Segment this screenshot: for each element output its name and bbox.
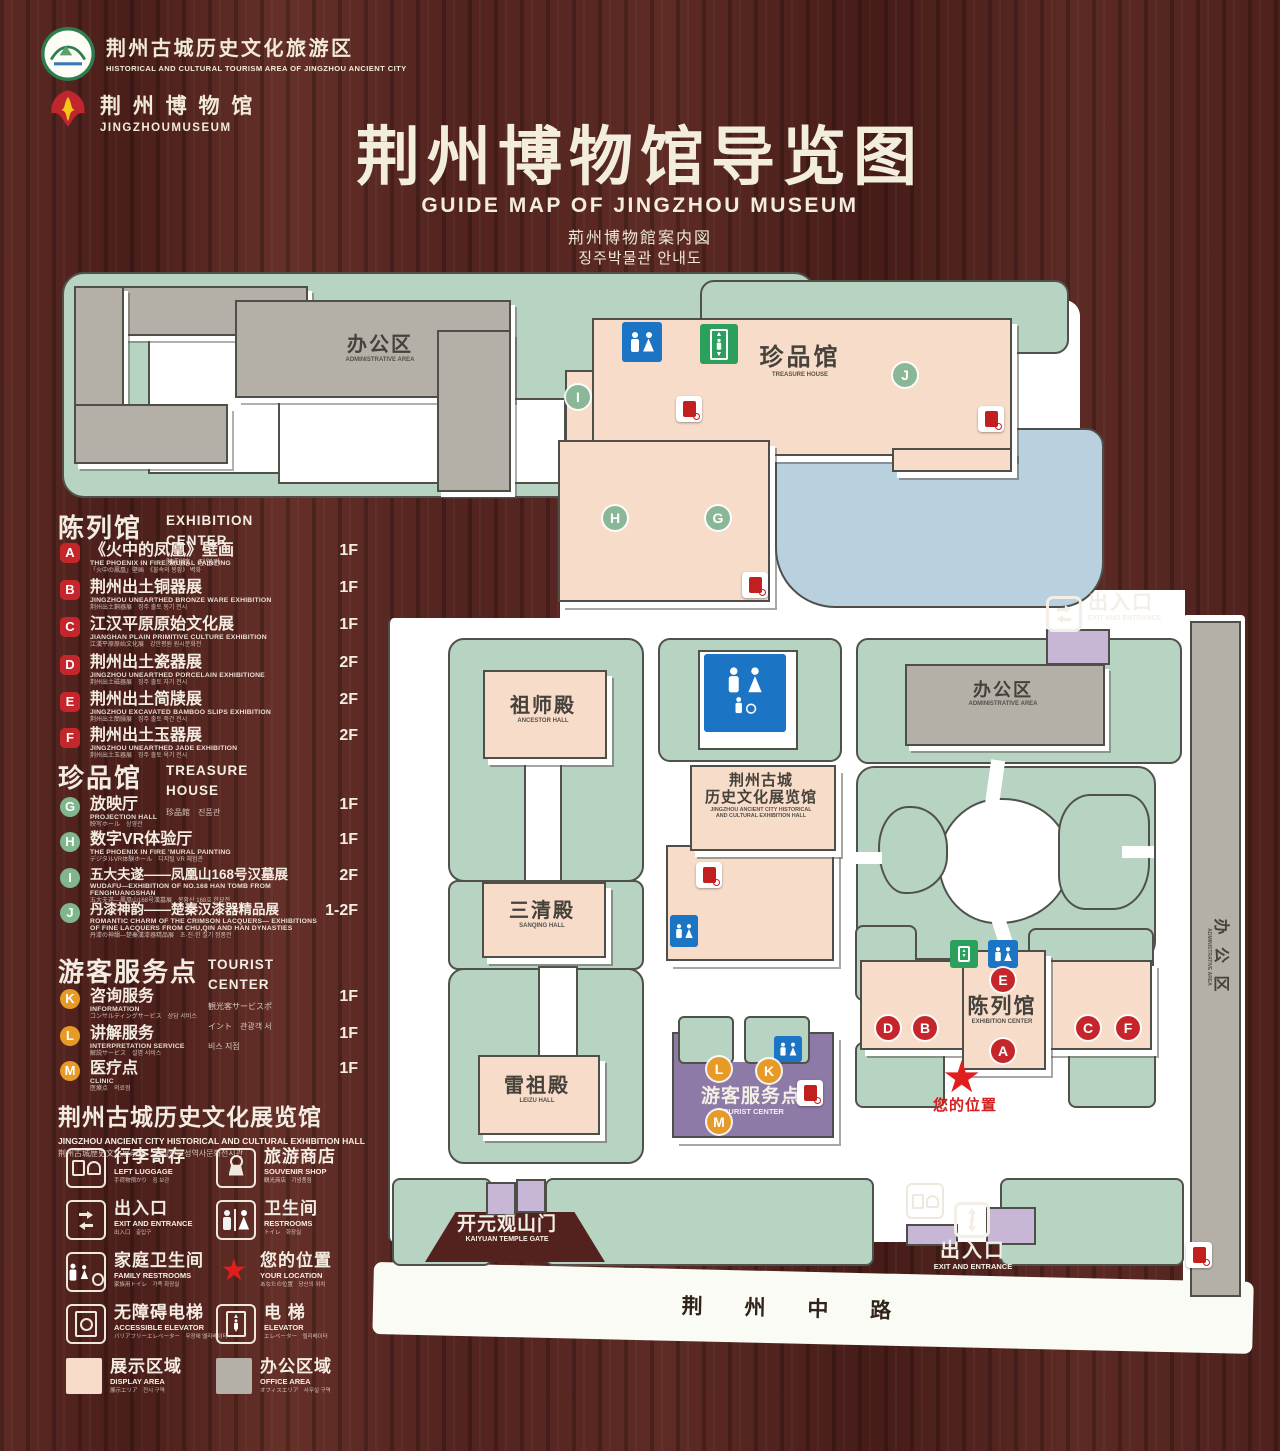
page-title-ko: 징주박물관 안내도 <box>280 247 1000 268</box>
left-luggage-icon <box>66 1148 106 1188</box>
ancient-city-label-en2: AND CULTURAL EXHIBITION HALL <box>694 813 828 819</box>
icon-en: ELEVATOR <box>264 1323 328 1332</box>
treasure-label-en: TREASURE HOUSE <box>730 372 870 379</box>
exit-entrance-icon <box>1046 596 1082 632</box>
tourist-label-en: TOURIST CENTER <box>676 1108 826 1117</box>
ancient-city-label-cn1: 荆州古城 <box>694 772 828 789</box>
icon-en: ACCESSIBLE ELEVATOR <box>114 1323 228 1332</box>
legend-badge: A <box>60 543 80 563</box>
floor-label: 2F <box>339 867 358 885</box>
area-en: DISPLAY AREA <box>110 1377 182 1386</box>
legend-badge: F <box>60 728 80 748</box>
sanqing-hall-label: 三清殿 SANQING HALL <box>486 900 598 930</box>
elevator-icon: ▲▼ <box>700 324 738 364</box>
icon-sub: エレベーター 엘리베이터 <box>264 1332 328 1340</box>
admin-side-label: 办 公 区 ADMINISTRATIVE AREA <box>1199 877 1229 1037</box>
icon-cn: 电 梯 <box>264 1304 328 1323</box>
area-sub: オフィスエリア 사무실 구역 <box>260 1386 332 1394</box>
restroom-icon <box>704 654 786 732</box>
exit-entrance-icon <box>954 1202 990 1238</box>
page-title-ja: 荊州博物館案内図 <box>280 224 1000 248</box>
admin-top-label-en: ADMINISTRATIVE AREA <box>280 357 480 364</box>
hall-note-cn: 荆州古城历史文化展览馆 <box>58 1098 365 1132</box>
legend-exit-entrance: 出入口EXIT AND ENTRANCE出入口 출입구 <box>66 1200 192 1240</box>
accessible-elevator-icon <box>1186 1242 1212 1268</box>
item-sub: デジタルVR体験ホール 디지털 VR 체험관 <box>90 857 318 864</box>
legend-item-C: C 1F 江汉平原原始文化展JIANGHAN PLAIN PRIMITIVE C… <box>58 616 358 649</box>
item-sub: 江漢平原原始文化展 강한평원 원시문화전 <box>90 642 318 649</box>
section-title-en: TREASURE HOUSE <box>166 763 248 798</box>
path <box>524 753 562 884</box>
gate-label-en: KAIYUAN TEMPLE GATE <box>432 1236 582 1244</box>
restroom-icon <box>774 1036 802 1062</box>
admin-top-label: 办公区 ADMINISTRATIVE AREA <box>280 334 480 364</box>
map-badge-F: F <box>1116 1016 1140 1040</box>
area-cn: 展示区域 <box>110 1358 182 1377</box>
legend-item-M: M 1F 医疗点CLINIC医療点 의료점 <box>58 1060 358 1093</box>
page-title: 荆州博物馆导览图 <box>280 106 1000 198</box>
family-restrooms-icon <box>66 1252 106 1292</box>
hall-note-en: JINGZHOU ANCIENT CITY HISTORICAL AND CUL… <box>58 1136 365 1146</box>
legend-badge: J <box>60 903 80 923</box>
souvenir-shop-icon <box>216 1148 256 1188</box>
legend-elevator: ▲▼ 电 梯ELEVATORエレベーター 엘리베이터 <box>216 1304 328 1344</box>
admin-mid-label-en: ADMINISTRATIVE AREA <box>903 701 1103 708</box>
map-badge-L: L <box>707 1057 731 1081</box>
item-sub: 医療点 의료점 <box>90 1086 318 1093</box>
gate-block <box>516 1179 546 1213</box>
item-cn: 《火中的凤凰》壁画 <box>90 542 318 560</box>
item-cn: 咨询服务 <box>90 988 318 1006</box>
item-sub: コンサルティングサービス 상담 서비스 <box>90 1014 318 1021</box>
restroom-icon <box>988 940 1018 968</box>
exhibition-center-label-cn: 陈列馆 <box>968 995 1037 1018</box>
gate-label: 开元观山门 KAIYUAN TEMPLE GATE <box>432 1214 582 1244</box>
floor-label: 1F <box>339 831 358 849</box>
accessible-elevator-icon <box>676 396 702 422</box>
floor-label: 2F <box>339 691 358 709</box>
restroom-icon <box>670 915 698 947</box>
floor-label: 1F <box>339 988 358 1006</box>
icon-cn: 无障碍电梯 <box>114 1304 228 1323</box>
legend-item-I: I 2F 五大夫遂——凤凰山168号汉墓展WUDAFU—EXHIBITION O… <box>58 867 358 905</box>
treasure-house-label: 珍品馆 TREASURE HOUSE <box>730 344 870 378</box>
leizu-label-en: LEIZU HALL <box>482 1098 592 1105</box>
your-location-icon: ★ <box>216 1252 252 1288</box>
legend-badge: M <box>60 1061 80 1081</box>
icon-cn: 您的位置 <box>260 1252 332 1271</box>
admin-side-label-en: ADMINISTRATIVE AREA <box>1205 877 1211 1037</box>
legend-item-G: G 1F 放映厅PROJECTION HALL映写ホール 상영관 <box>58 796 358 829</box>
exit-top-label-en: EXIT AND ENTRANCE <box>1088 615 1208 623</box>
map-badge-I: I <box>566 385 590 409</box>
legend-badge: K <box>60 989 80 1009</box>
legend-accessible-elevator: 无障碍电梯ACCESSIBLE ELEVATORバリアフリーエレベーター 무장애… <box>66 1304 228 1344</box>
garden-path <box>1122 846 1154 858</box>
tourism-area-name: 荆州古城历史文化旅游区 <box>106 32 407 61</box>
icon-en: FAMILY RESTROOMS <box>114 1271 204 1280</box>
icon-cn: 行李寄存 <box>114 1148 186 1167</box>
garden-path <box>856 852 882 864</box>
treasure-label-cn: 珍品馆 <box>760 344 841 371</box>
museum-logo-icon <box>46 86 90 132</box>
legend-badge: E <box>60 692 80 712</box>
legend-your-location: ★ 您的位置YOUR LOCATIONあなたの位置 당신의 위치 <box>216 1252 332 1288</box>
legend-item-A: A 1F 《火中的凤凰》壁画THE PHOENIX IN FIRE 'MURAL… <box>58 542 358 575</box>
entrance-block <box>1046 629 1110 665</box>
legend-badge: C <box>60 617 80 637</box>
admin-top-label-cn: 办公区 <box>347 334 413 356</box>
floor-label: 1F <box>339 796 358 814</box>
section-title-cn: 珍品馆 <box>58 763 142 793</box>
legend-item-K: K 1F 咨询服务INFORMATIONコンサルティングサービス 상담 서비스 <box>58 988 358 1021</box>
legend-family-restrooms: 家庭卫生间FAMILY RESTROOMS家族用トイレ 가족 화장실 <box>66 1252 204 1292</box>
item-sub: 丹漆の神韻—楚秦漢漆器精品展 초·진·한 칠기 정품전 <box>90 933 318 940</box>
icon-sub: あなたの位置 당신의 위치 <box>260 1280 332 1288</box>
area-cn: 办公区域 <box>260 1358 332 1377</box>
icon-en: EXIT AND ENTRANCE <box>114 1219 192 1228</box>
gate-label-cn: 开元观山门 <box>457 1214 557 1235</box>
legend-badge: G <box>60 797 80 817</box>
legend-item-D: D 2F 荆州出土瓷器展JINGZHOU UNEARTHED PORCELAIN… <box>58 654 358 687</box>
map-badge-M: M <box>707 1110 731 1134</box>
legend-badge: I <box>60 868 80 888</box>
legend-left-luggage: 行李寄存LEFT LUGGAGE手荷物預かり 짐 보관 <box>66 1148 186 1188</box>
icon-sub: 手荷物預かり 짐 보관 <box>114 1176 186 1184</box>
map-badge-B: B <box>913 1016 937 1040</box>
item-cn: 荆州出土铜器展 <box>90 579 318 597</box>
legend-item-H: H 1F 数字VR体验厅THE PHOENIX IN FIRE 'MURAL P… <box>58 831 358 864</box>
item-cn: 五大夫遂——凤凰山168号汉墓展 <box>90 867 318 883</box>
exhibition-center-label: 陈列馆 EXHIBITION CENTER <box>932 995 1072 1026</box>
ic­on-cn: 家庭卫生间 <box>114 1252 204 1271</box>
ancestor-hall-label: 祖师殿 ANCESTOR HALL <box>487 695 599 725</box>
map-badge-G: G <box>706 506 730 530</box>
accessible-elevator-icon <box>742 572 768 598</box>
item-cn: 放映厅 <box>90 796 318 814</box>
map-badge-D: D <box>876 1016 900 1040</box>
building-treasure-house <box>892 448 1012 472</box>
guide-map-poster: 荆州古城历史文化旅游区 HISTORICAL AND CULTURAL TOUR… <box>0 0 1280 1451</box>
legend-display-area: 展示区域DISPLAY AREA展示エリア 전시 구역 <box>66 1358 182 1394</box>
display-area-swatch <box>66 1358 102 1394</box>
area-sub: 展示エリア 전시 구역 <box>110 1386 182 1394</box>
legend-item-E: E 2F 荆州出土简牍展JINGZHOU EXCAVATED BAMBOO SL… <box>58 691 358 724</box>
left-luggage-icon <box>906 1183 944 1219</box>
legend-section-treasure: 珍品馆 TREASURE HOUSE 珍品館 진품관 <box>58 758 142 795</box>
floor-label: 1F <box>339 1060 358 1078</box>
icon-en: SOUVENIR SHOP <box>264 1167 336 1176</box>
legend-item-J: J 1-2F 丹漆神韵——楚秦汉漆器精品展ROMANTIC CHARM OF T… <box>58 902 358 940</box>
section-title-cn: 游客服务点 <box>58 957 198 987</box>
sanqing-label-en: SANQING HALL <box>486 923 598 930</box>
legend-section-tourist: 游客服务点 TOURIST CENTER 観光客サービスポイント 관광객 서비스… <box>58 952 198 989</box>
admin-mid-label-cn: 办公区 <box>973 680 1033 700</box>
icon-sub: 観光商店 기념품점 <box>264 1176 336 1184</box>
legend-restrooms: 卫生间RESTROOMSトイレ 화장실 <box>216 1200 318 1240</box>
road-label: 荆 州 中 路 <box>681 1290 909 1325</box>
icon-sub: トイレ 화장실 <box>264 1228 318 1236</box>
icon-sub: 出入口 출입구 <box>114 1228 192 1236</box>
sanqing-label-cn: 三清殿 <box>509 900 575 922</box>
legend-badge: D <box>60 655 80 675</box>
item-sub: 荆州出土簡牘展 징주 출토 죽간 전시 <box>90 717 318 724</box>
ancient-city-label-cn2: 历史文化展览馆 <box>694 789 828 806</box>
map-badge-K: K <box>757 1059 781 1083</box>
section-title-en: TOURIST CENTER <box>208 957 274 992</box>
building-admin-top <box>74 404 228 464</box>
map-badge-E: E <box>991 968 1015 992</box>
legend-item-B: B 1F 荆州出土铜器展JINGZHOU UNEARTHED BRONZE WA… <box>58 579 358 612</box>
exit-top-label: 出入口 EXIT AND ENTRANCE <box>1088 592 1208 623</box>
item-cn: 讲解服务 <box>90 1025 318 1043</box>
legend-item-L: L 1F 讲解服务INTERPRETATION SERVICE解説サービス 설명… <box>58 1025 358 1058</box>
floor-label: 1F <box>339 579 358 597</box>
ancestor-label-cn: 祖师殿 <box>510 695 576 717</box>
legend-badge: H <box>60 832 80 852</box>
elevator-icon: ▲▼ <box>950 940 978 968</box>
item-cn: 丹漆神韵——楚秦汉漆器精品展 <box>90 902 318 918</box>
item-en: WUDAFU—EXHIBITION OF NO.168 HAN TOMB FRO… <box>90 883 318 899</box>
floor-label: 1-2F <box>325 902 358 920</box>
ground-pad-tourist <box>678 1016 734 1064</box>
restroom-icon <box>622 322 662 362</box>
item-sub: 荆州出土銅器展 징주 출토 동기 전시 <box>90 605 318 612</box>
your-location-label: 您的位置 <box>915 1094 1015 1115</box>
restrooms-icon <box>216 1200 256 1240</box>
floor-label: 2F <box>339 727 358 745</box>
map-badge-A: A <box>991 1039 1015 1063</box>
map-badge-H: H <box>603 506 627 530</box>
accessible-elevator-icon <box>696 862 722 888</box>
admin-mid-label: 办公区 ADMINISTRATIVE AREA <box>903 680 1103 708</box>
leizu-hall-label: 雷祖殿 LEIZU HALL <box>482 1075 592 1105</box>
exhibition-center-label-en: EXHIBITION CENTER <box>932 1019 1072 1026</box>
ancient-city-hall-label: 荆州古城 历史文化展览馆 JINGZHOU ANCIENT CITY HISTO… <box>694 772 828 819</box>
leizu-label-cn: 雷祖殿 <box>504 1075 570 1097</box>
ground-pad-corner <box>1068 1046 1156 1108</box>
road-jingzhou-middle: 荆 州 中 路 <box>372 1262 1253 1354</box>
tourism-area-logo-icon <box>40 26 96 82</box>
elevator-icon: ▲▼ <box>216 1304 256 1344</box>
exit-bottom-label-cn: 出入口 <box>940 1240 1006 1262</box>
legend-souvenir-shop: 旅游商店SOUVENIR SHOP観光商店 기념품점 <box>216 1148 336 1188</box>
map-badge-C: C <box>1076 1016 1100 1040</box>
legend-section-exhibition: 陈列馆 EXHIBITION CENTER 陳列館 진열관 <box>58 508 142 545</box>
garden-blob <box>878 806 948 894</box>
ancient-city-label-en1: JINGZHOU ANCIENT CITY HISTORICAL <box>694 807 828 813</box>
exit-entrance-icon <box>66 1200 106 1240</box>
tourist-label-cn: 游客服务点 <box>701 1086 801 1107</box>
icon-cn: 卫生间 <box>264 1200 318 1219</box>
area-en: OFFICE AREA <box>260 1377 332 1386</box>
item-cn: 荆州出土瓷器展 <box>90 654 318 672</box>
admin-side-label-cn: 办 公 区 <box>1212 919 1229 996</box>
icon-sub: 家族用トイレ 가족 화장실 <box>114 1280 204 1288</box>
building-treasure-house <box>558 440 770 602</box>
ancestor-label-en: ANCESTOR HALL <box>487 718 599 725</box>
tourism-area-logo-text: 荆州古城历史文化旅游区 HISTORICAL AND CULTURAL TOUR… <box>106 32 407 73</box>
icon-en: LEFT LUGGAGE <box>114 1167 186 1176</box>
exit-bottom-label-en: EXIT AND ENTRANCE <box>908 1263 1038 1272</box>
exit-bottom-label: 出入口 EXIT AND ENTRANCE <box>908 1240 1038 1272</box>
item-cn: 荆州出土玉器展 <box>90 727 318 745</box>
item-cn: 江汉平原原始文化展 <box>90 616 318 634</box>
legend-office-area: 办公区域OFFICE AREAオフィスエリア 사무실 구역 <box>216 1358 332 1394</box>
gate-block <box>486 1182 516 1216</box>
floor-label: 1F <box>339 542 358 560</box>
tourism-area-name-en: HISTORICAL AND CULTURAL TOURISM AREA OF … <box>106 64 407 73</box>
path <box>538 966 578 1062</box>
museum-name-en: JINGZHOUMUSEUM <box>100 122 255 134</box>
courtyard <box>278 398 566 484</box>
museum-name: 荆 州 博 物 馆 <box>100 90 255 120</box>
icon-cn: 出入口 <box>114 1200 192 1219</box>
floor-label: 1F <box>339 616 358 634</box>
page-title-en: GUIDE MAP OF JINGZHOU MUSEUM <box>280 194 1000 218</box>
legend-badge: L <box>60 1026 80 1046</box>
accessible-elevator-icon <box>797 1080 823 1106</box>
map-badge-J: J <box>893 363 917 387</box>
item-sub: 解説サービス 설명 서비스 <box>90 1051 318 1058</box>
section-title-cn: 陈列馆 <box>58 513 142 543</box>
item-sub: 「火中の鳳凰」壁画 《불속의 봉황》 벽화 <box>90 568 318 575</box>
exit-top-label-cn: 出入口 <box>1088 592 1154 614</box>
museum-logo-text: 荆 州 博 物 馆 JINGZHOUMUSEUM <box>100 90 255 134</box>
item-cn: 数字VR体验厅 <box>90 831 318 849</box>
floor-label: 2F <box>339 654 358 672</box>
floor-label: 1F <box>339 1025 358 1043</box>
legend-badge: B <box>60 580 80 600</box>
icon-cn: 旅游商店 <box>264 1148 336 1167</box>
item-cn: 医疗点 <box>90 1060 318 1078</box>
item-cn: 荆州出土简牍展 <box>90 691 318 709</box>
icon-en: RESTROOMS <box>264 1219 318 1228</box>
legend-item-F: F 2F 荆州出土玉器展JINGZHOU UNEARTHED JADE EXHI… <box>58 727 358 760</box>
icon-sub: バリアフリーエレベーター 무장애 엘리베이터 <box>114 1332 228 1340</box>
icon-en: YOUR LOCATION <box>260 1271 332 1280</box>
item-sub: 映写ホール 상영관 <box>90 822 318 829</box>
accessible-elevator-icon <box>978 406 1004 432</box>
office-area-swatch <box>216 1358 252 1394</box>
accessible-elevator-icon <box>66 1304 106 1344</box>
item-en: ROMANTIC CHARM OF THE CRIMSON LACQUERS— … <box>90 918 318 934</box>
item-sub: 荆州出土磁器展 징주 출토 자기 전시 <box>90 680 318 687</box>
legend: 陈列馆 EXHIBITION CENTER 陳列館 진열관 A 1F 《火中的凤… <box>58 500 368 1440</box>
